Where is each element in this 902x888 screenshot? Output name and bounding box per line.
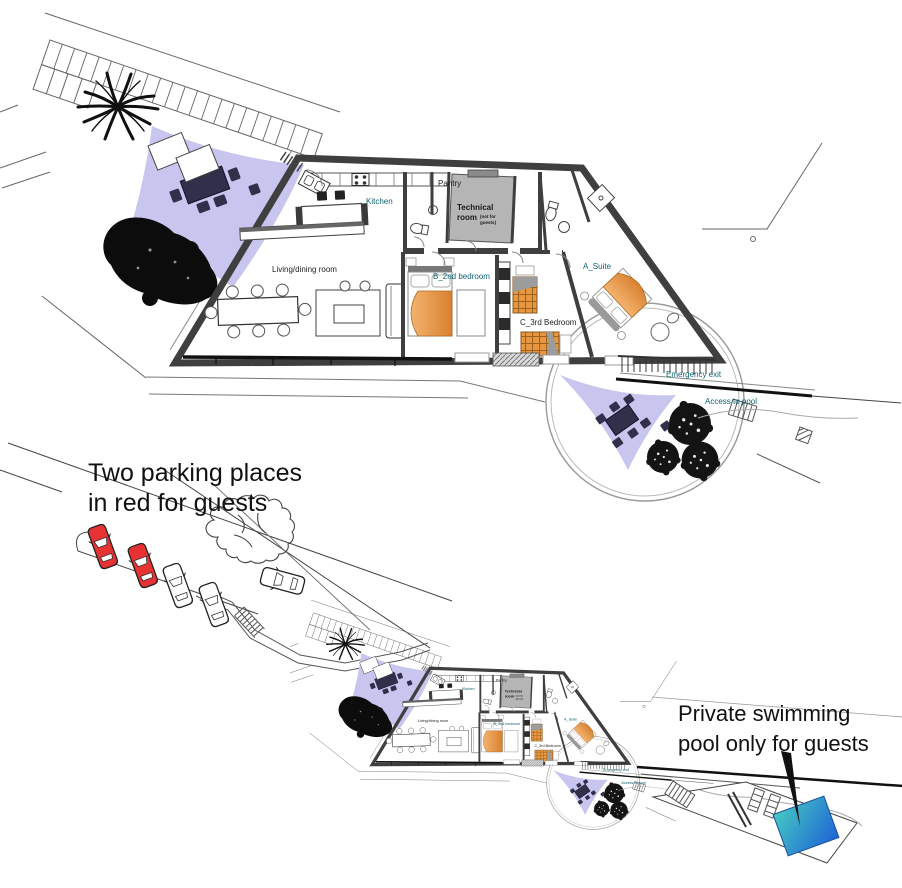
pool-annotation-line2: pool only for guests <box>678 731 869 756</box>
suite-toilet-icon <box>544 201 559 222</box>
access-to-pool-label: Access to pool <box>705 397 757 406</box>
villa-plan-svg: Kitchen Pantry Technical room (not for g… <box>0 0 902 888</box>
right-boundary <box>702 143 822 242</box>
footpath <box>196 588 430 671</box>
living-label: Living/dining room <box>272 265 337 274</box>
parking-annotation-line1: Two parking places <box>88 459 302 487</box>
car-4 <box>196 580 232 628</box>
sofa-set <box>316 281 403 338</box>
upper-floor-plan: Kitchen Pantry Technical room (not for g… <box>0 13 901 501</box>
pool-terrace <box>653 751 862 863</box>
suite-a <box>579 260 681 341</box>
kitchen-label: Kitchen <box>366 197 393 206</box>
patio-tree-3 <box>681 440 721 481</box>
emergency-exit-label: Emergency exit <box>666 370 722 379</box>
guest-car-1 <box>85 522 121 570</box>
bedroom-c-label: C_3rd Bedroom <box>520 318 577 327</box>
patio-tree-2 <box>646 439 680 475</box>
guest-car-2 <box>125 541 161 589</box>
site-plan-building-miniature <box>290 600 713 829</box>
pantry-label: Pantry <box>438 179 461 188</box>
architectural-drawing-page: Kitchen Pantry Technical room (not for g… <box>0 0 902 888</box>
car-3 <box>160 561 196 609</box>
bedroom-c <box>497 262 571 356</box>
suite-a-label: A_Suite <box>583 262 612 271</box>
bedroom-b <box>406 258 485 336</box>
toilet-icon <box>410 222 429 235</box>
living-dining-area <box>204 281 403 339</box>
stove-icon <box>352 174 369 186</box>
suite-sink-icon <box>559 222 570 233</box>
parking-cars <box>85 522 307 628</box>
patio-tree-1 <box>668 401 713 448</box>
technical-room-note-2: guests) <box>480 220 497 225</box>
technical-room-note-1: (not for <box>480 214 496 219</box>
parking-annotation-line2: in red for guests <box>88 489 267 517</box>
pool-annotation-line1: Private swimming <box>678 701 850 726</box>
technical-room-label-1: Technical <box>457 203 493 212</box>
technical-room-label-2: room <box>457 213 477 222</box>
car-5 <box>259 564 306 597</box>
bed-b-duvet <box>411 291 452 336</box>
site-plan: Two parking places in red for guests Pri… <box>0 443 902 863</box>
bedroom-b-label: B_2nd bedroom <box>433 272 490 281</box>
